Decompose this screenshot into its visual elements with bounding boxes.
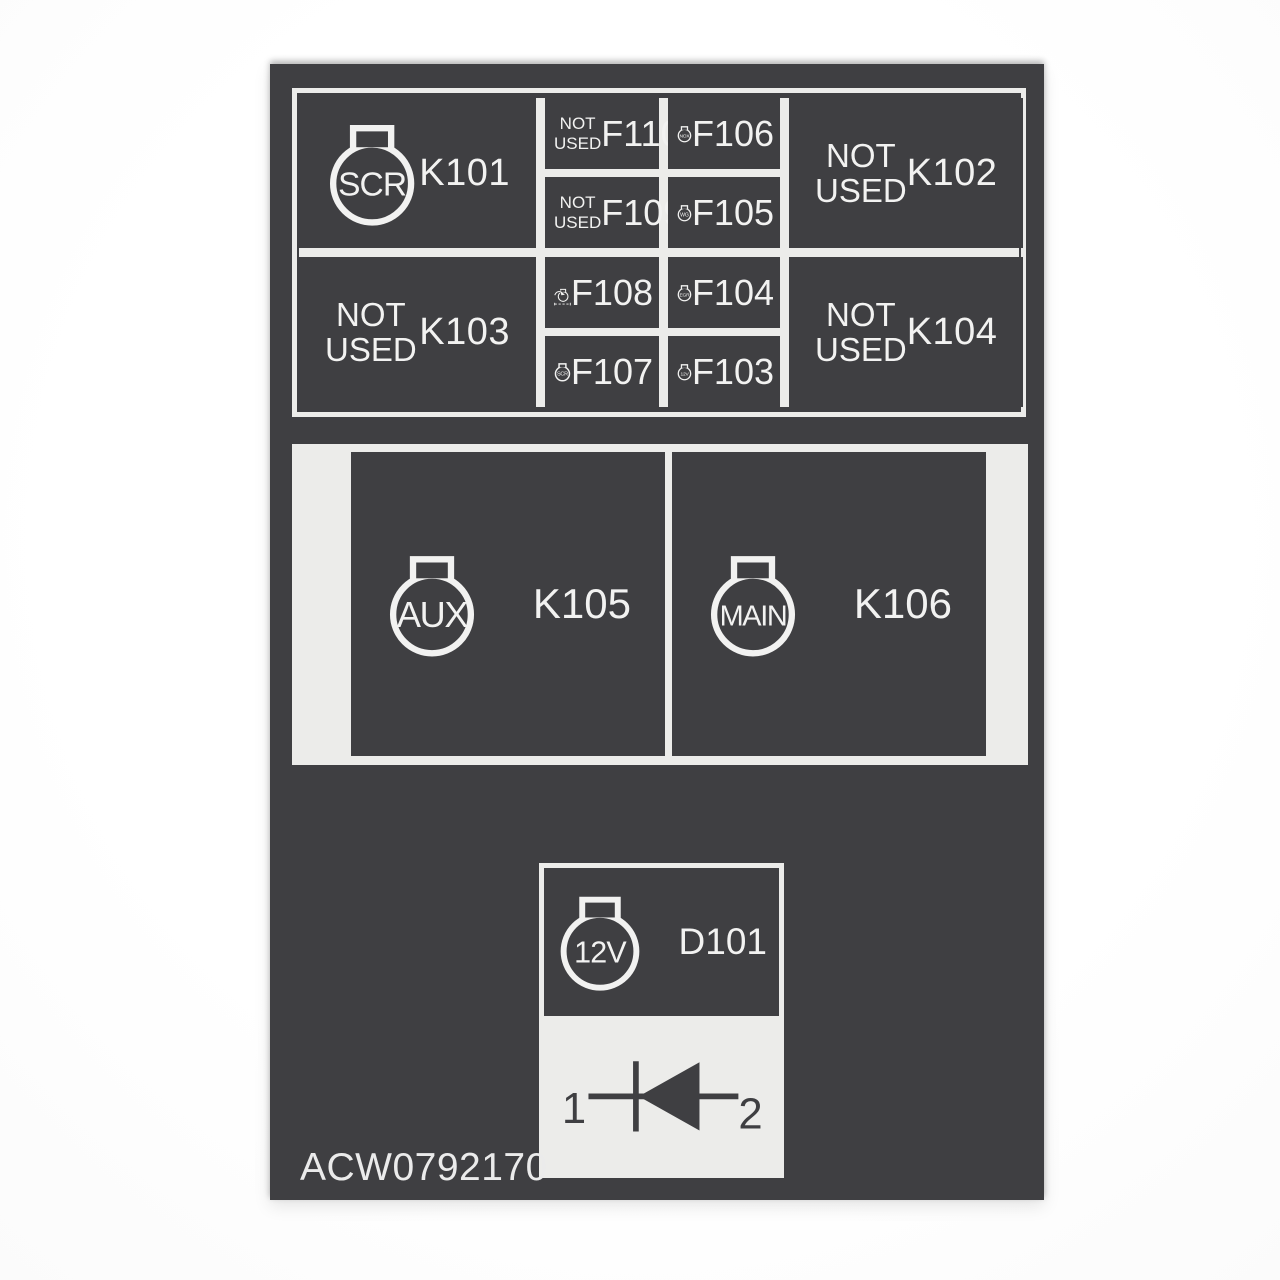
note-line: NOT	[826, 138, 896, 173]
note-line: USED	[325, 332, 417, 367]
relay-cell-k104: NOT USED K104	[789, 257, 1023, 407]
relay-cell-k103: NOT USED K103	[299, 257, 536, 407]
12v-diode-icon-label: 12V	[574, 935, 627, 969]
nox-fuse-icon: NOX	[677, 110, 692, 158]
note-line: USED	[815, 332, 907, 367]
relay-box-k106: MAIN K106	[672, 452, 986, 756]
12v-diode-coil-icon: 12V	[556, 892, 644, 992]
note-line: NOT	[826, 297, 896, 332]
scr-relay-coil-icon: SCR	[325, 117, 419, 230]
fuse-f109-not-used-note: NOT USED	[554, 193, 601, 231]
12v-fuse-icon: 12V	[677, 348, 692, 396]
fuse-label-f107: F107	[571, 351, 653, 393]
diode-block: 12V D101 1 2	[539, 863, 784, 1178]
note-line: USED	[554, 213, 601, 232]
fuse-box-decal: SCR K101 NOT USED F110 NO	[270, 64, 1044, 1200]
note-line: NOT	[560, 193, 596, 212]
main-relay-band: AUX K105 MAIN K106	[292, 444, 1028, 765]
note-line: NOT	[560, 114, 596, 133]
fuse-cell-f108: F108	[545, 257, 659, 328]
note-line: USED	[815, 173, 907, 208]
diode-label-d101: D101	[679, 921, 767, 963]
egr-fuse-icon: EGR	[677, 269, 692, 317]
photo-background: SCR K101 NOT USED F110 NO	[0, 0, 1280, 1280]
fuse-label-f105: F105	[692, 192, 774, 234]
scr-relay-icon-label: SCR	[338, 166, 406, 203]
fuse-label-f106: F106	[692, 113, 774, 155]
fuse-column-3: F108 SCR F107	[545, 257, 659, 407]
diode-pin-2-label: 2	[738, 1090, 762, 1139]
diode-symbol-icon: 1 2	[560, 1047, 764, 1142]
fuse-label-f108: F108	[571, 272, 653, 314]
diode-symbol-section: 1 2	[544, 1016, 779, 1173]
fuse-label-f103: F103	[692, 351, 774, 393]
fuse-cell-f110: NOT USED F110	[545, 98, 659, 169]
main-relay-coil-icon: MAIN	[706, 551, 800, 658]
relay-cell-k101: SCR K101	[299, 98, 536, 248]
nox-fuse-icon-label: NOX	[680, 133, 691, 139]
relay-k103-not-used-note: NOT USED	[325, 297, 417, 368]
aux-relay-icon-label: AUX	[397, 594, 468, 635]
relay-fuse-grid-inner: SCR K101 NOT USED F110 NO	[299, 98, 1019, 407]
fuse-cell-f104: EGR F104	[668, 257, 780, 328]
fuse-cell-f109: NOT USED F109	[545, 177, 659, 248]
scr-fuse-icon: SCR	[554, 348, 571, 396]
fuse-cell-f105: WG F105	[668, 177, 780, 248]
fuse-label-f104: F104	[692, 272, 774, 314]
fuse-cell-f106: NOX F106	[668, 98, 780, 169]
note-line: NOT	[336, 297, 406, 332]
wg-fuse-icon-label: WG	[680, 212, 689, 218]
egr-fuse-icon-label: EGR	[680, 292, 691, 298]
note-line: USED	[554, 134, 601, 153]
wg-fuse-icon: WG	[677, 189, 692, 237]
fuse-column-1: NOT USED F110 NOT USED F109	[545, 98, 659, 248]
fuse-cell-f103: 12V F103	[668, 336, 780, 407]
relay-fuse-grid: SCR K101 NOT USED F110 NO	[292, 88, 1026, 417]
12v-fuse-icon-label: 12V	[680, 371, 689, 377]
fuse-f110-not-used-note: NOT USED	[554, 114, 601, 152]
fuse-column-4: EGR F104 12V F103	[668, 257, 780, 407]
main-relay-icon-label: MAIN	[720, 600, 787, 632]
fuse-column-2: NOX F106 WG F105	[668, 98, 780, 248]
relay-label-k105: K105	[533, 580, 631, 628]
relay-label-k101: K101	[419, 152, 510, 195]
relay-k104-not-used-note: NOT USED	[815, 297, 907, 368]
diode-relay-section: 12V D101	[544, 868, 779, 1016]
relay-label-k106: K106	[854, 580, 952, 628]
fuse-cell-f107: SCR F107	[545, 336, 659, 407]
relay-cell-k102: NOT USED K102	[789, 98, 1023, 248]
regeneration-fuse-icon	[554, 264, 571, 328]
scr-fuse-icon-label: SCR	[557, 371, 568, 377]
relay-box-k105: AUX K105	[351, 452, 665, 756]
aux-relay-coil-icon: AUX	[385, 551, 479, 658]
part-number: ACW0792170	[300, 1146, 548, 1190]
diode-pin-1-label: 1	[561, 1084, 585, 1133]
relay-k102-not-used-note: NOT USED	[815, 138, 907, 209]
relay-label-k103: K103	[419, 311, 510, 354]
relay-label-k102: K102	[907, 152, 998, 195]
relay-label-k104: K104	[907, 311, 998, 354]
